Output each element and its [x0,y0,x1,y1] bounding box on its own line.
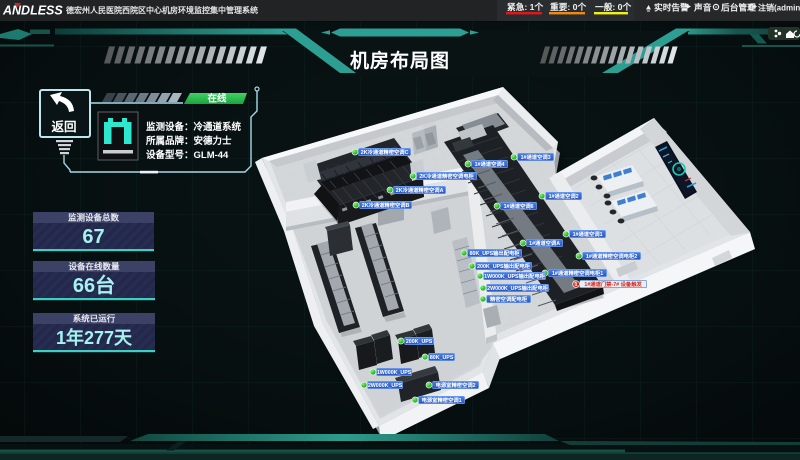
svg-text:2K冷通道精密空调C: 2K冷通道精密空调C [361,148,409,156]
svg-text:返回: 返回 [51,119,76,134]
svg-text:1#通道空调A: 1#通道空调A [529,239,560,247]
svg-text:ANDLESS: ANDLESS [2,4,63,18]
svg-text:1#通道精密空调电柜2: 1#通道精密空调电柜2 [586,252,637,260]
svg-text:监测设备总数: 监测设备总数 [68,213,120,223]
svg-text:2K冷通道精密空调B: 2K冷通道精密空调B [362,201,410,209]
svg-text:1#通道空调2: 1#通道空调2 [549,192,579,200]
svg-text:200K_UPS: 200K_UPS [406,339,433,345]
svg-text:1#通道空调1: 1#通道空调1 [573,230,603,238]
svg-text:1W000K_UPS: 1W000K_UPS [377,370,412,376]
svg-text:实时告警: 实时告警 [654,2,689,13]
svg-text:设备在线数量: 设备在线数量 [68,262,120,272]
svg-text:后台管理: 后台管理 [721,2,756,13]
svg-text:注销(admin): 注销(admin) [758,3,800,13]
svg-text:电源室精密空调1: 电源室精密空调1 [422,396,462,404]
svg-text:2K冷通道精密空调电柜: 2K冷通道精密空调电柜 [419,172,474,180]
svg-text:67: 67 [82,226,104,248]
svg-text:66台: 66台 [73,273,115,297]
svg-text:一般: 0个: 一般: 0个 [595,1,632,12]
svg-text:80K_UPS: 80K_UPS [430,355,454,361]
svg-text:机房布局图: 机房布局图 [350,49,450,72]
svg-text:在线: 在线 [207,93,227,105]
svg-text:1#通道精密空调电柜1: 1#通道精密空调电柜1 [552,269,603,277]
svg-text:1年277天: 1年277天 [56,327,133,348]
svg-text:所属品牌：安德力士: 所属品牌：安德力士 [146,135,232,147]
svg-text:2K冷通道精密空调A: 2K冷通道精密空调A [396,186,444,194]
svg-text:德宏州人民医院西院区中心机房环境监控集中管理系统: 德宏州人民医院西院区中心机房环境监控集中管理系统 [66,5,258,15]
svg-text:紧急: 1个: 紧急: 1个 [507,1,544,12]
svg-text:声音: 声音 [693,2,712,13]
svg-text:设备型号：GLM-44: 设备型号：GLM-44 [146,149,229,161]
svg-text:1#通道空调4: 1#通道空调4 [475,160,505,168]
svg-text:精密空调配电柜: 精密空调配电柜 [490,295,528,303]
svg-text:监测设备：冷通道系统: 监测设备：冷通道系统 [146,121,242,133]
svg-text:系统已运行: 系统已运行 [73,314,116,324]
svg-text:1#通道门禁-7# 设备触发: 1#通道门禁-7# 设备触发 [584,280,642,288]
svg-text:80K_UPS输出配电柜: 80K_UPS输出配电柜 [470,249,521,257]
svg-text:1#通道空调3: 1#通道空调3 [521,153,551,161]
svg-text:1#通道空调6: 1#通道空调6 [504,202,534,210]
svg-text:1: 1 [574,282,577,288]
svg-text:2W000K_UPS: 2W000K_UPS [368,383,403,389]
svg-text:2W000K_UPS输出配电柜: 2W000K_UPS输出配电柜 [487,284,549,292]
svg-text:电源室精密空调2: 电源室精密空调2 [436,381,476,389]
svg-text:200K_UPS输出配电柜: 200K_UPS输出配电柜 [477,262,531,270]
svg-text:1W000K_UPS输出配电柜: 1W000K_UPS输出配电柜 [484,272,546,280]
svg-text:重要: 0个: 重要: 0个 [550,1,587,12]
